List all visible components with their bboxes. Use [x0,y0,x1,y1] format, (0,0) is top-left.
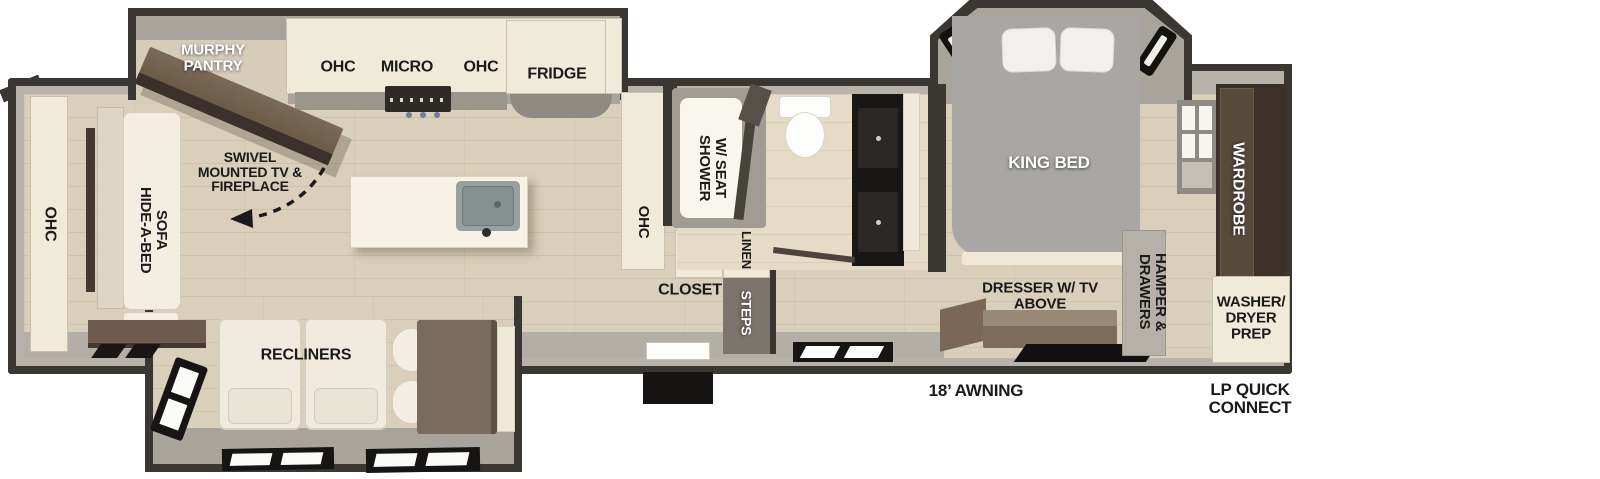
island-sink [456,181,520,231]
window-pane [425,452,469,466]
label-steps: STEPS [739,291,754,336]
window-pane [373,453,417,467]
drawer-handle [876,136,881,141]
window-pane [230,453,273,466]
toilet-bowl [785,112,825,158]
window-pane [159,398,187,430]
label-murphy-pantry: MURPHY PANTRY [171,42,255,74]
recliner-left [218,318,302,430]
bed-base [962,252,1130,265]
window-pane [844,346,884,358]
bedroom-window [1177,100,1217,194]
label-hamper-drawers: HAMPER & DRAWERS [1136,245,1168,339]
stove-cooktop [385,86,451,112]
sink-faucet [482,228,491,237]
label-front-ohc: OHC [41,207,58,242]
sofa-back [97,107,124,309]
label-kitchen-ohc-left: OHC [321,60,356,77]
sink-basin [462,186,514,226]
label-closet: CLOSET [658,283,722,300]
dinette-table [417,320,497,434]
recliner-seat [314,388,378,424]
label-fridge: FRIDGE [527,67,586,84]
front-wall-strip [86,128,95,292]
floorplan: MURPHY PANTRY OHC MICRO OHC FRIDGE SWIVE… [0,0,1600,479]
pillow [1001,27,1057,73]
label-recliners: RECLINERS [261,348,352,365]
bath-vanity [852,94,904,266]
drawer-handle [876,220,881,225]
window-pane [171,366,199,398]
mid-ohc-cabinet [621,92,665,270]
stove-knob [434,112,440,118]
bottom-window [793,342,893,362]
swivel-arrow-icon [228,164,328,230]
recliner-seat [228,388,292,424]
window-sill [1182,162,1212,188]
label-dresser-tv: DRESSER W/ TV ABOVE [974,280,1106,312]
slide-window-1 [222,447,334,471]
stove-knob [406,112,412,118]
label-washer-dryer-prep: WASHER/ DRYER PREP [1207,294,1295,341]
vanity-drawer [858,192,898,252]
label-mid-ohc: OHC [635,206,651,239]
window-pane [1199,106,1212,130]
bath-bedroom-wall [928,84,946,272]
recliner-right [304,318,388,430]
pillow [1059,27,1115,73]
entry-door [643,372,713,404]
fridge-base [510,94,612,118]
dinette-bench [497,326,515,432]
entry-door-opening [646,342,710,360]
vanity-drawer [858,108,898,168]
vanity-side-panel [903,93,920,251]
label-awning: 18’ AWNING [929,382,1024,400]
window-pane [281,452,324,465]
label-linen: LINEN [739,231,753,269]
label-kitchen-ohc-right: OHC [464,60,499,77]
slide-window-2 [366,447,480,473]
sink-drain [494,201,501,208]
dresser [983,310,1117,348]
window-pane [1182,134,1195,158]
stove-knob [420,112,426,118]
label-kitchen-micro: MICRO [381,60,433,77]
label-wardrobe: WARDROBE [1229,142,1246,236]
window-pane [800,346,840,358]
label-lp-quick-connect: LP QUICK CONNECT [1203,381,1297,417]
label-king-bed: KING BED [1008,154,1090,172]
label-shower: SHOWER W/ SEAT [696,130,728,206]
window-pane [1199,134,1212,158]
label-hide-a-bed-sofa: HIDE-A-BED SOFA [137,181,169,279]
window-pane [1182,106,1195,130]
